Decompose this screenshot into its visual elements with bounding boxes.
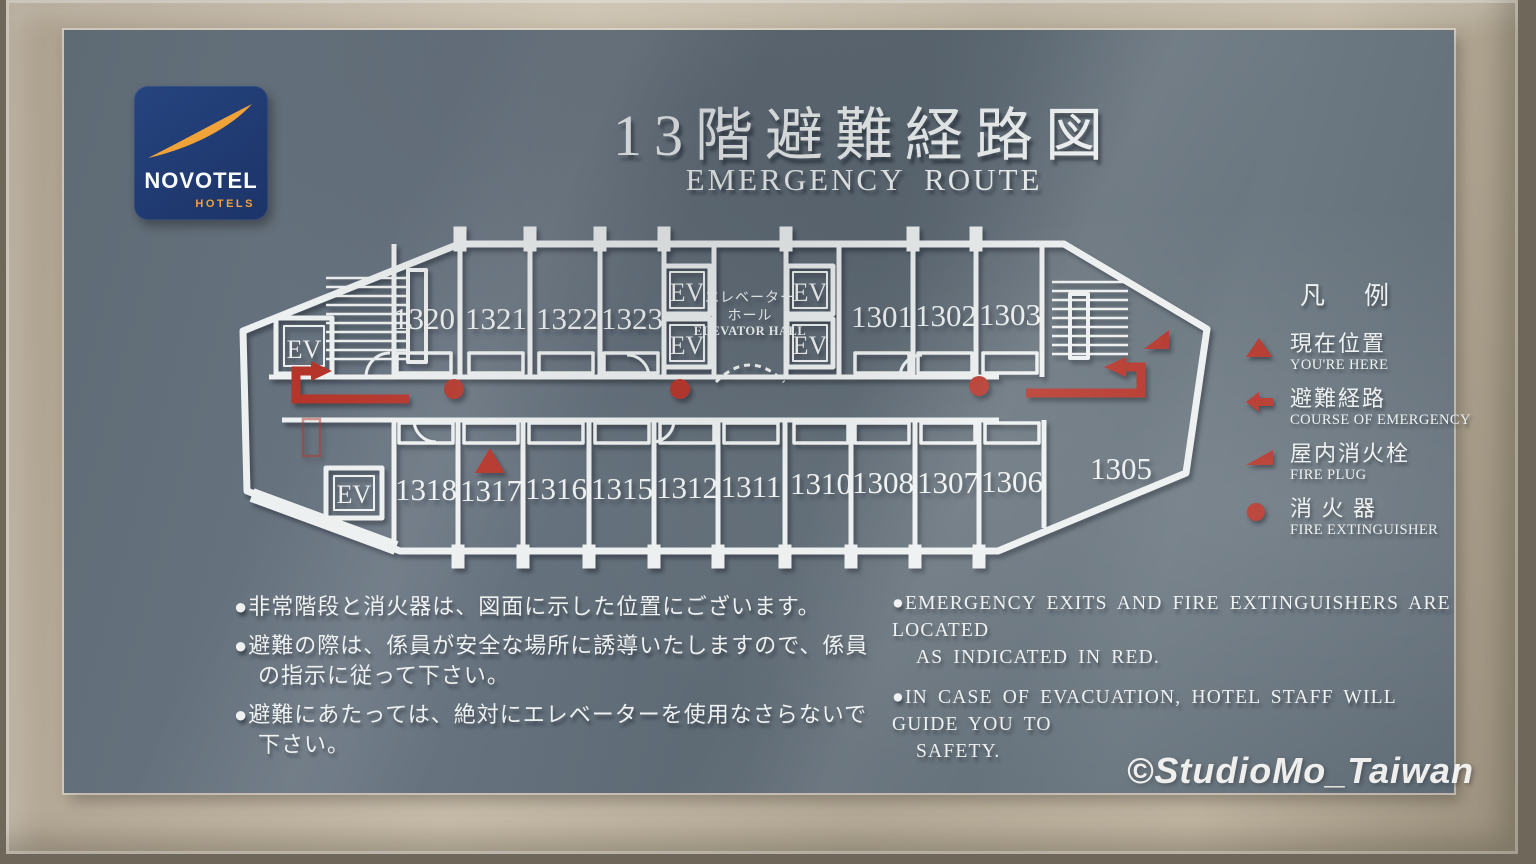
legend-label-jp: 屋内消火栓 — [1290, 442, 1410, 465]
room-label: 1322 — [536, 301, 598, 336]
novotel-swoosh-icon — [144, 100, 258, 164]
room-label: 1320 — [393, 301, 455, 336]
room-label: 1308 — [852, 465, 914, 500]
legend-label-jp: 避難経路 — [1290, 387, 1471, 410]
elevator-label: EV — [337, 480, 372, 509]
elevator-hall-label-jp2: ホール — [728, 309, 773, 324]
legend-label-jp: 消 火 器 — [1290, 497, 1438, 520]
room-label: 1318 — [395, 472, 457, 507]
elevator-hall-label-jp1: エレベーター — [705, 290, 795, 306]
novotel-brand-text: NOVOTEL — [134, 168, 268, 194]
fire-extinguisher-dot-icon — [1244, 497, 1276, 529]
note-line: ●非常階段と消火器は、図面に示した位置にございます。 — [234, 592, 874, 622]
room-label: 1302 — [915, 298, 977, 333]
room-label: 1306 — [981, 464, 1043, 499]
you-are-here-triangle — [475, 448, 505, 473]
room-label: 1305 — [1090, 451, 1152, 486]
fire-extinguisher-dot — [444, 379, 464, 399]
elevator-label: EV — [287, 335, 322, 364]
room-label: 1303 — [979, 297, 1041, 332]
novotel-logo: NOVOTEL HOTELS — [134, 86, 268, 220]
legend-label-en: COURSE OF EMERGENCY — [1290, 412, 1471, 429]
legend-heading: 凡 例 — [1300, 276, 1504, 312]
sign-panel: NOVOTEL HOTELS 13階避難経路図 EMERGENCY ROUTE — [64, 30, 1454, 793]
fire-extinguisher-dot — [969, 376, 989, 396]
notes-english: ●EMERGENCY EXITS AND FIRE EXTINGUISHERS … — [892, 590, 1472, 765]
room-label: 1312 — [656, 470, 718, 505]
elevator-label: EV — [793, 278, 828, 307]
room-label: 1310 — [790, 466, 852, 501]
note-line: ●IN CASE OF EVACUATION, HOTEL STAFF WILL… — [892, 684, 1472, 738]
note-line: 下さい。 — [234, 730, 874, 760]
emergency-route-sign-photo: NOVOTEL HOTELS 13階避難経路図 EMERGENCY ROUTE — [0, 0, 1536, 864]
room-label: 1301 — [851, 299, 913, 334]
sign-title-english: EMERGENCY ROUTE — [584, 162, 1144, 198]
route-arrowhead-right — [1104, 357, 1126, 377]
legend-item-course-of-emergency: 避難経路 COURSE OF EMERGENCY — [1244, 387, 1504, 429]
room-label: 1317 — [460, 473, 522, 508]
elevator-label: EV — [670, 278, 705, 307]
photographer-watermark: ©StudioMo_Taiwan — [1127, 750, 1474, 792]
legend-label-en: FIRE PLUG — [1290, 467, 1410, 484]
note-line: ●EMERGENCY EXITS AND FIRE EXTINGUISHERS … — [892, 590, 1472, 644]
room-label: 1323 — [601, 301, 663, 336]
you-are-here-triangle-icon — [1244, 332, 1276, 364]
legend-item-fire-extinguisher: 消 火 器 FIRE EXTINGUISHER — [1244, 497, 1504, 539]
fire-plug-flag-icon — [1244, 442, 1276, 474]
fire-plug-marker-left — [303, 419, 320, 456]
room-label: 1307 — [917, 465, 979, 500]
note-line: ●避難にあたっては、絶対にエレベーターを使用なさらないで — [234, 700, 874, 730]
room-label: 1311 — [721, 469, 782, 504]
note-line: AS INDICATED IN RED. — [892, 644, 1472, 671]
room-label: 1321 — [465, 301, 527, 336]
elevator-hall-label-en: ELEVATOR HALL — [694, 324, 806, 338]
legend-item-fire-plug: 屋内消火栓 FIRE PLUG — [1244, 442, 1504, 484]
legend-label-jp: 現在位置 — [1290, 332, 1388, 355]
novotel-hotels-text: HOTELS — [195, 198, 255, 210]
room-label: 1316 — [525, 471, 587, 506]
room-label: 1315 — [591, 471, 653, 506]
legend: 凡 例 現在位置 YOU'RE HERE 避難経路 COURSE OF EMER… — [1244, 276, 1504, 552]
floor-plan: 1320 1321 1322 1323 1301 1302 1303 1318 … — [232, 228, 1222, 573]
legend-label-en: YOU'RE HERE — [1290, 357, 1388, 374]
legend-label-en: FIRE EXTINGUISHER — [1290, 522, 1438, 539]
fire-extinguisher-dot — [670, 379, 690, 399]
fire-plug-flag-right — [1144, 330, 1169, 349]
notes-japanese: ●非常階段と消火器は、図面に示した位置にございます。 ●避難の際は、係員が安全な… — [234, 592, 874, 760]
note-line: の指示に従って下さい。 — [234, 661, 874, 691]
evacuation-route-arrow-icon — [1244, 387, 1276, 419]
sign-title-japanese: 13階避難経路図 — [584, 88, 1144, 172]
note-line: ●避難の際は、係員が安全な場所に誘導いたしますので、係員 — [234, 631, 874, 661]
legend-item-you-are-here: 現在位置 YOU'RE HERE — [1244, 332, 1504, 374]
